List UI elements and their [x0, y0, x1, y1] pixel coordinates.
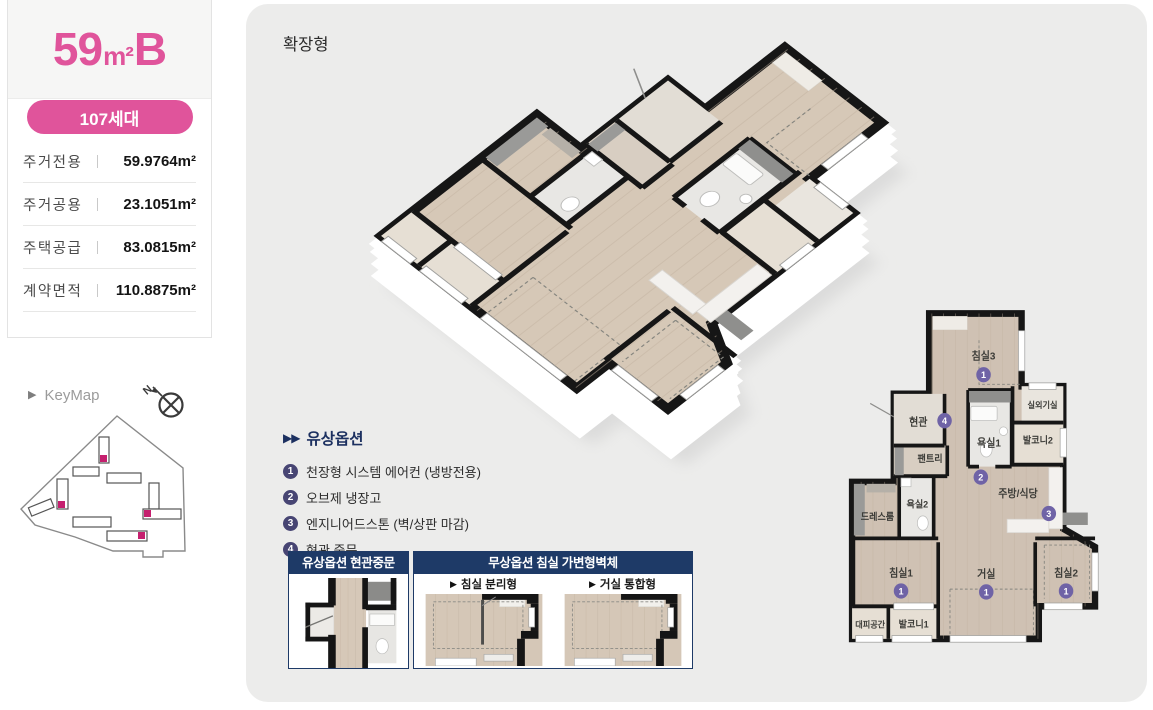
unit-card-header: 59m²B — [8, 0, 211, 99]
spec-row: 주택공급 83.0815m² — [23, 226, 196, 269]
marker-badge: 2 — [974, 469, 989, 484]
unit-type-title: 59m²B — [53, 26, 166, 72]
marker-badge: 1 — [1059, 583, 1074, 598]
svg-text:1: 1 — [1064, 586, 1069, 596]
page: { "unit_card": { "title": {"size": "59",… — [0, 0, 1153, 710]
keymap-label: KeyMap — [44, 387, 99, 404]
plan-type-label: 확장형 — [283, 31, 329, 55]
room-label: 침실1 — [889, 566, 913, 579]
option-item: 2 오브제 냉장고 — [283, 488, 583, 507]
area-spec-table: 주거전용 59.9764m² 주거공용 23.1051m² 주택공급 83.08… — [23, 140, 196, 312]
wall-option-panel: 무상옵션 침실 가변형벽체 ▶침실 분리형 — [413, 551, 693, 669]
spec-label: 주택공급 — [23, 237, 97, 258]
svg-text:4: 4 — [942, 416, 948, 426]
svg-text:3: 3 — [1046, 509, 1051, 519]
wall-option-panel-title: 무상옵션 침실 가변형벽체 — [414, 552, 692, 574]
option-item: 3 엔지니어드스톤 (벽/상판 마감) — [283, 514, 583, 533]
marker-badge: 1 — [979, 584, 994, 599]
marker-badge: 1 — [976, 367, 991, 382]
room-label: 침실3 — [972, 349, 996, 362]
spec-label: 주거공용 — [23, 194, 97, 215]
unit-info-card: 59m²B 107세대 주거전용 59.9764m² 주거공용 23.1051m… — [7, 0, 212, 338]
svg-text:2: 2 — [978, 472, 983, 482]
keymap-sitemap — [14, 406, 204, 574]
entry-door-miniplan — [299, 578, 399, 668]
spec-divider — [97, 284, 98, 297]
spec-value: 23.1051m² — [123, 196, 196, 213]
room-label: 욕실2 — [906, 499, 928, 510]
marker-badge: 4 — [937, 413, 952, 428]
living-integrated-option: ▶거실 통합형 — [564, 576, 682, 666]
spec-row: 주거전용 59.9764m² — [23, 140, 196, 183]
marker-badge: 3 — [1042, 506, 1057, 521]
floorplan-board: 확장형 ▶▶ 유상옵션 1 천장형 시스템 에어컨 (냉방전용) 2 오브제 냉… — [246, 4, 1147, 702]
north-label: N — [141, 383, 155, 397]
room-label: 팬트리 — [918, 453, 943, 464]
room-label: 주방/식당 — [998, 487, 1038, 500]
unit-size-unit: m² — [103, 41, 133, 71]
unit-size: 59 — [53, 23, 102, 75]
paid-options-title: ▶▶ 유상옵션 — [283, 427, 583, 449]
door-option-panel: 유상옵션 현관중문 — [288, 551, 409, 669]
arrow-icon: ▶ — [450, 580, 457, 589]
spec-label: 계약면적 — [23, 280, 97, 301]
option-number-badge: 1 — [283, 464, 298, 479]
arrow-icon: ▶ — [28, 390, 36, 401]
svg-text:1: 1 — [899, 586, 904, 596]
spec-value: 59.9764m² — [123, 153, 196, 170]
svg-text:1: 1 — [981, 370, 986, 380]
household-count-badge: 107세대 — [27, 100, 193, 134]
room-label: 대피공간 — [855, 619, 885, 629]
spec-value: 110.8875m² — [116, 282, 196, 299]
room-label: 현관 — [909, 415, 928, 428]
arrow-icon: ▶ — [589, 580, 596, 589]
spec-row: 계약면적 110.8875m² — [23, 269, 196, 312]
double-arrow-icon: ▶▶ — [283, 432, 299, 444]
spec-divider — [97, 241, 98, 254]
option-number-badge: 2 — [283, 490, 298, 505]
spec-divider — [97, 155, 98, 168]
door-option-panel-title: 유상옵션 현관중문 — [289, 552, 408, 574]
room-label: 욕실1 — [977, 436, 1001, 449]
spec-value: 83.0815m² — [123, 239, 196, 256]
living-integrated-miniplan — [564, 594, 682, 666]
bedroom-separated-miniplan — [425, 594, 543, 666]
door-option-plan — [289, 574, 408, 668]
room-label: 실외기실 — [1027, 400, 1057, 410]
bedroom-separated-option: ▶침실 분리형 — [425, 576, 543, 666]
spec-divider — [97, 198, 98, 211]
unit-type-letter: B — [134, 23, 166, 75]
spec-row: 주거공용 23.1051m² — [23, 183, 196, 226]
paid-options: ▶▶ 유상옵션 1 천장형 시스템 에어컨 (냉방전용) 2 오브제 냉장고 3… — [283, 427, 583, 566]
room-label: 드레스룸 — [861, 511, 895, 522]
option-number-badge: 3 — [283, 516, 298, 531]
svg-text:1: 1 — [984, 587, 989, 597]
room-label: 발코니1 — [899, 618, 929, 629]
option-item: 1 천장형 시스템 에어컨 (냉방전용) — [283, 462, 583, 481]
room-label: 침실2 — [1054, 566, 1078, 579]
marker-badge: 1 — [894, 583, 909, 598]
room-label: 거실 — [977, 567, 995, 580]
room-label: 발코니2 — [1023, 434, 1053, 445]
spec-label: 주거전용 — [23, 151, 97, 172]
keymap-heading: ▶ KeyMap — [28, 387, 100, 404]
floorplan-2d-view: 침실3 현관 실외기실 욕실1 발코니2 팬트리 욕실2 드레스룸 주방/식당 … — [843, 302, 1115, 658]
